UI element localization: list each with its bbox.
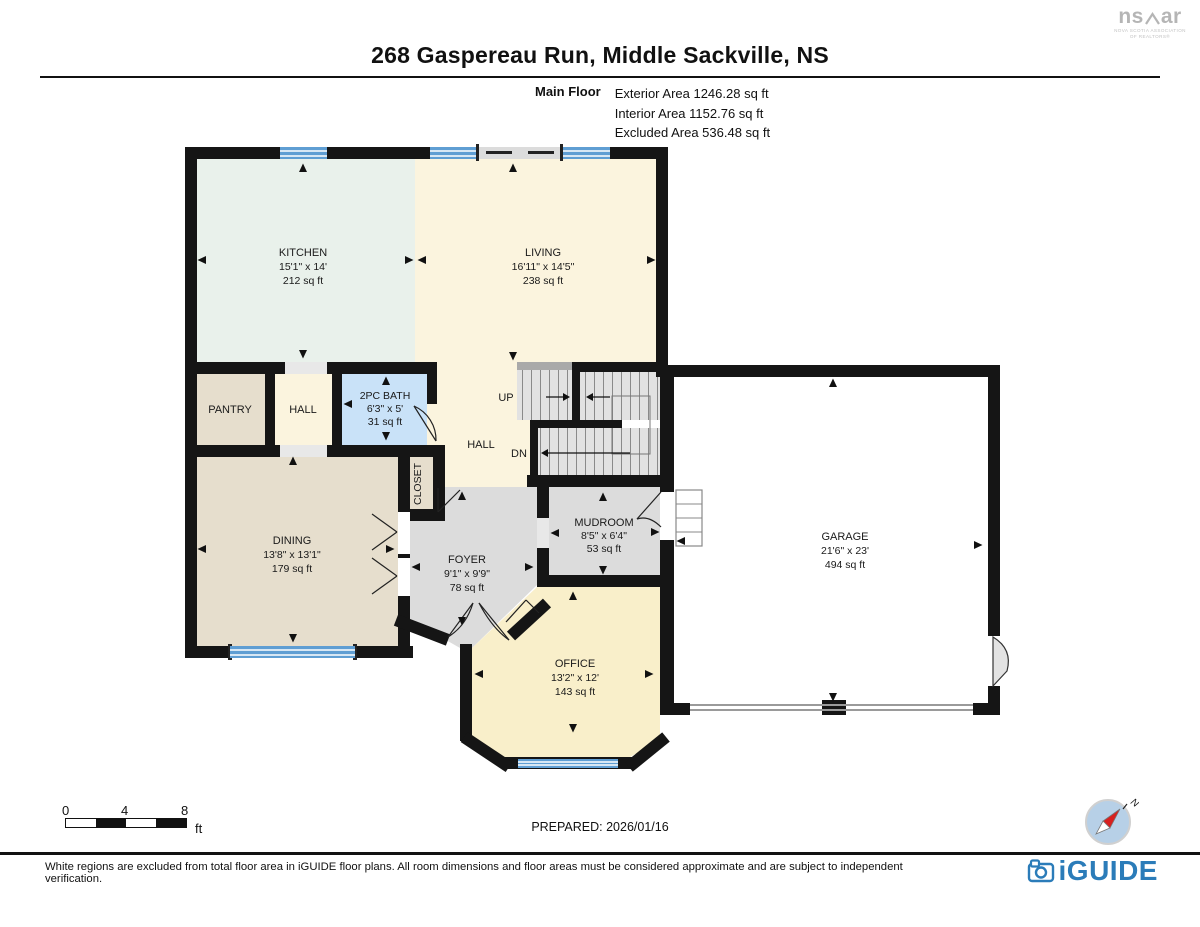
office-area: 143 sq ft	[555, 686, 595, 698]
mudroom-dims: 8'5" x 6'4"	[581, 530, 627, 542]
living-dims: 16'11" x 14'5"	[512, 261, 575, 273]
iguide-logo: iGUIDE	[1027, 855, 1158, 887]
kitchen-area: 212 sq ft	[283, 275, 323, 287]
stairs-up-label: UP	[498, 392, 513, 404]
hall-upper-label: HALL	[289, 404, 317, 416]
pantry-label: PANTRY	[208, 404, 252, 416]
living-window-left	[430, 147, 477, 159]
floorplan-page: ns ar NOVA SCOTIA ASSOCIATION OF REALTOR…	[0, 0, 1200, 927]
room-hall-lower	[437, 362, 530, 487]
footer-divider	[0, 852, 1200, 855]
iguide-camera-icon	[1027, 859, 1055, 883]
scale-tick-8: 8	[181, 803, 188, 818]
bath-dims: 6'3" x 5'	[367, 403, 403, 415]
kitchen-dims: 15'1" x 14'	[279, 261, 327, 273]
stairs	[517, 362, 664, 475]
dining-window	[230, 646, 355, 658]
mudroom-area: 53 sq ft	[587, 543, 622, 555]
kitchen-window	[280, 147, 327, 159]
garage-dims: 21'6" x 23'	[821, 545, 869, 557]
iguide-logo-text: iGUIDE	[1059, 855, 1158, 887]
kitchen-label: KITCHEN	[279, 247, 327, 259]
closet-label: CLOSET	[412, 462, 424, 505]
disclaimer-text: White regions are excluded from total fl…	[45, 861, 945, 885]
bath-label: 2PC BATH	[360, 390, 411, 402]
living-window-right	[563, 147, 610, 159]
hall-lower-label: HALL	[467, 439, 495, 451]
dining-dims: 13'8" x 13'1"	[263, 549, 321, 561]
living-label: LIVING	[525, 247, 561, 259]
living-area: 238 sq ft	[523, 275, 563, 287]
office-bay-window	[518, 759, 618, 768]
scale-tick-0: 0	[62, 803, 69, 818]
mudroom-label: MUDROOM	[574, 517, 633, 529]
dining-area: 179 sq ft	[272, 563, 312, 575]
floor-plan-drawing: KITCHEN 15'1" x 14' 212 sq ft LIVING 16'…	[0, 0, 1200, 927]
office-label: OFFICE	[555, 658, 595, 670]
compass-north-label: N	[1128, 797, 1139, 811]
compass: N	[1083, 793, 1139, 849]
garage-area: 494 sq ft	[825, 559, 865, 571]
office-dims: 13'2" x 12'	[551, 672, 599, 684]
prepared-date: PREPARED: 2026/01/16	[0, 820, 1200, 834]
garage-label: GARAGE	[821, 531, 868, 543]
bath-area: 31 sq ft	[368, 416, 403, 428]
stairs-down-label: DN	[511, 448, 527, 460]
foyer-area: 78 sq ft	[450, 582, 485, 594]
foyer-dims: 9'1" x 9'9"	[444, 568, 490, 580]
dining-label: DINING	[273, 535, 312, 547]
foyer-label: FOYER	[448, 554, 486, 566]
scale-tick-4: 4	[121, 803, 128, 818]
